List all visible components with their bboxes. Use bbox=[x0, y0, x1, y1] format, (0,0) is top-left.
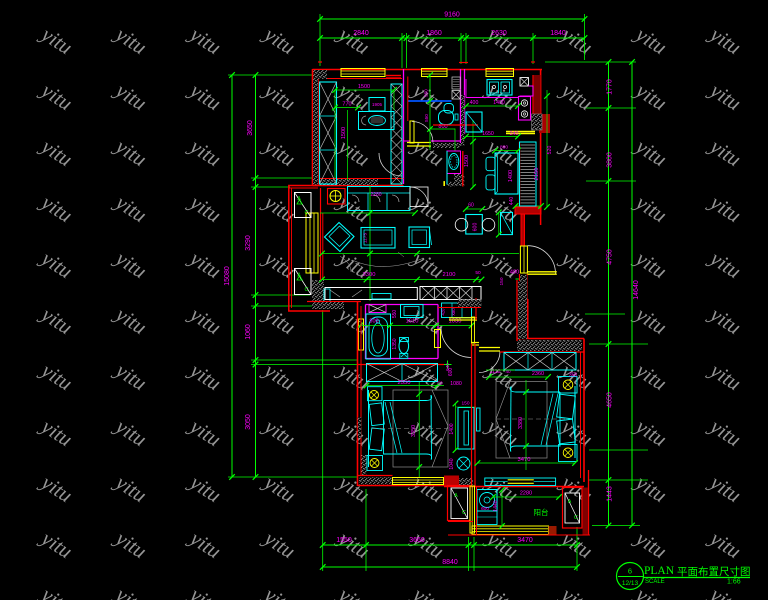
svg-text:600: 600 bbox=[473, 223, 479, 232]
svg-text:3290: 3290 bbox=[245, 235, 252, 251]
svg-text:PLAN: PLAN bbox=[644, 565, 675, 577]
svg-text:550: 550 bbox=[392, 310, 398, 319]
svg-text:C: C bbox=[305, 287, 309, 293]
svg-text:440: 440 bbox=[509, 197, 515, 206]
svg-text:50: 50 bbox=[475, 270, 481, 276]
svg-text:C: C bbox=[574, 515, 578, 521]
svg-text:1500: 1500 bbox=[464, 155, 470, 167]
svg-text:1400: 1400 bbox=[449, 423, 455, 434]
svg-text:1175: 1175 bbox=[363, 233, 369, 244]
svg-text:SCALE: SCALE bbox=[645, 579, 665, 585]
svg-text:12/13: 12/13 bbox=[622, 580, 639, 587]
svg-text:1443: 1443 bbox=[607, 486, 614, 502]
svg-text:480: 480 bbox=[510, 270, 519, 276]
svg-text:1440: 1440 bbox=[493, 500, 499, 511]
svg-text:550: 550 bbox=[424, 114, 429, 122]
svg-text:3800: 3800 bbox=[607, 152, 614, 168]
svg-text:1840: 1840 bbox=[550, 30, 566, 37]
svg-text:1060: 1060 bbox=[245, 324, 252, 340]
svg-text:1500: 1500 bbox=[341, 127, 347, 139]
svg-text:3350: 3350 bbox=[411, 425, 417, 437]
svg-text:640: 640 bbox=[445, 363, 450, 371]
svg-text:4750: 4750 bbox=[607, 249, 614, 265]
svg-text:550: 550 bbox=[424, 89, 429, 97]
svg-text:520: 520 bbox=[547, 146, 553, 155]
svg-text:C: C bbox=[462, 510, 466, 516]
svg-text:9160: 9160 bbox=[444, 12, 460, 19]
svg-text:2280: 2280 bbox=[520, 491, 532, 497]
svg-text:770: 770 bbox=[342, 102, 351, 108]
svg-text:4650: 4650 bbox=[607, 392, 614, 408]
svg-text:3470: 3470 bbox=[518, 457, 531, 463]
svg-text:3300: 3300 bbox=[363, 272, 376, 278]
svg-text:1400: 1400 bbox=[508, 170, 514, 182]
svg-text:14640: 14640 bbox=[633, 280, 640, 300]
svg-text:3380: 3380 bbox=[518, 417, 524, 429]
svg-text:3470: 3470 bbox=[517, 537, 533, 544]
svg-text:15080: 15080 bbox=[224, 266, 231, 286]
svg-text:1040: 1040 bbox=[449, 458, 455, 469]
svg-text:420: 420 bbox=[441, 308, 446, 316]
svg-text:1:66: 1:66 bbox=[727, 579, 741, 586]
svg-text:3660: 3660 bbox=[409, 537, 425, 544]
svg-text:150: 150 bbox=[499, 277, 505, 285]
svg-text:800: 800 bbox=[369, 319, 378, 325]
svg-text:2550: 2550 bbox=[398, 380, 411, 386]
svg-text:60: 60 bbox=[437, 381, 443, 387]
svg-text:600: 600 bbox=[481, 506, 489, 512]
svg-text:2360: 2360 bbox=[532, 371, 544, 377]
svg-text:8840: 8840 bbox=[442, 559, 458, 566]
svg-text:阳台: 阳台 bbox=[534, 507, 549, 517]
svg-text:2150: 2150 bbox=[534, 168, 540, 181]
svg-text:X80: X80 bbox=[451, 308, 456, 316]
svg-text:350: 350 bbox=[569, 373, 578, 379]
svg-text:1650: 1650 bbox=[482, 131, 494, 137]
svg-text:3650: 3650 bbox=[247, 120, 254, 136]
svg-text:1550: 1550 bbox=[336, 537, 352, 544]
svg-text:1400: 1400 bbox=[493, 100, 505, 106]
svg-text:1350: 1350 bbox=[392, 338, 398, 349]
svg-text:1080: 1080 bbox=[450, 381, 462, 387]
svg-text:1770: 1770 bbox=[607, 79, 614, 95]
svg-text:860: 860 bbox=[500, 145, 508, 151]
svg-text:400: 400 bbox=[470, 100, 479, 106]
svg-text:3050: 3050 bbox=[245, 414, 252, 430]
svg-text:2280: 2280 bbox=[370, 192, 381, 198]
svg-text:1500: 1500 bbox=[358, 84, 370, 90]
svg-text:2630: 2630 bbox=[491, 30, 507, 37]
svg-text:60: 60 bbox=[468, 203, 474, 209]
svg-text:1860: 1860 bbox=[426, 30, 442, 37]
svg-text:240: 240 bbox=[510, 131, 519, 137]
svg-text:1905: 1905 bbox=[372, 102, 383, 107]
svg-text:2100: 2100 bbox=[443, 272, 456, 278]
svg-text:平面布置尺寸图: 平面布置尺寸图 bbox=[677, 565, 751, 578]
svg-text:2840: 2840 bbox=[353, 30, 369, 37]
svg-text:1610: 1610 bbox=[406, 319, 419, 325]
svg-text:C: C bbox=[305, 210, 309, 216]
svg-text:150: 150 bbox=[461, 401, 469, 407]
svg-text:6: 6 bbox=[628, 567, 632, 576]
